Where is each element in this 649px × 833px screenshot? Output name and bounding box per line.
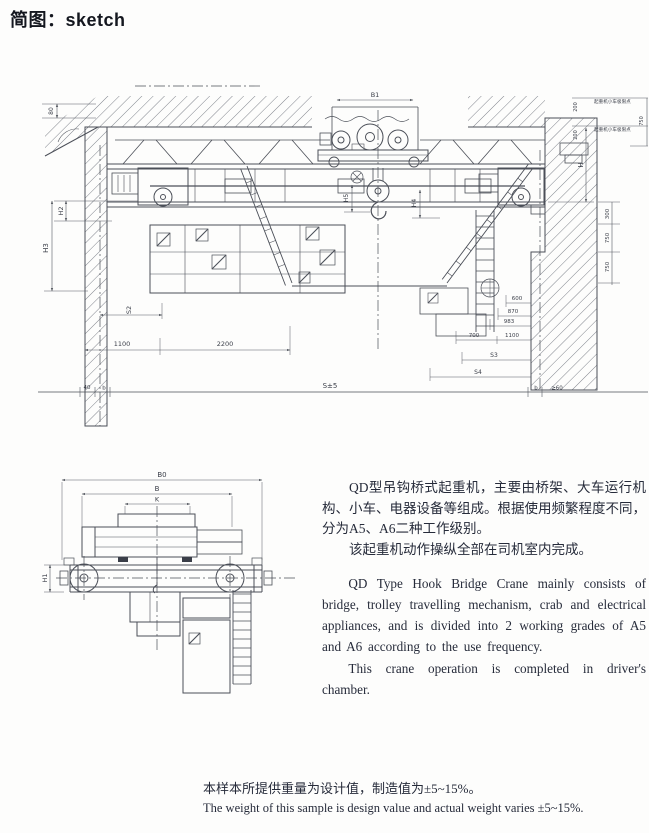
hook-icon xyxy=(371,202,386,219)
footnote-block: 本样本所提供重量为设计值，制造值为±5~15%。 The weight of t… xyxy=(203,780,584,818)
description-en-1: QD Type Hook Bridge Crane mainly consist… xyxy=(322,573,646,658)
endview-cabin xyxy=(130,590,251,693)
cabin-windows xyxy=(157,227,335,283)
dim-label-k: K xyxy=(155,496,160,504)
right-column xyxy=(531,118,597,390)
endview-trolley xyxy=(82,514,242,593)
trolley-limit-note-1: 起重机小车极限点 xyxy=(594,98,631,105)
dim-label-h1: H1 xyxy=(41,573,49,582)
ceiling-hatch-left xyxy=(98,96,312,127)
endview-bridge xyxy=(60,558,272,592)
description-en-2: This crane operation is completed in dri… xyxy=(322,658,646,700)
dim-label-s2: S2 xyxy=(125,306,133,314)
dim-label-b-left: b xyxy=(102,386,106,392)
drivers-cabin xyxy=(150,225,345,293)
page-title: 简图：sketch xyxy=(10,6,126,32)
dim-label-1100: 1100 xyxy=(114,340,131,348)
dim-label-h4: H4 xyxy=(411,199,418,208)
dim-label-2200: 2200 xyxy=(217,340,234,348)
dim-label-983: 983 xyxy=(504,319,515,325)
dim-label-200b: 200 xyxy=(573,130,579,140)
dim-label-870: 870 xyxy=(508,309,519,315)
dim-label-span: S±5 xyxy=(323,382,338,390)
endview-centerlines xyxy=(56,506,295,652)
dim-label-s4: S4 xyxy=(474,369,482,376)
footnote-zh: 本样本所提供重量为设计值，制造值为±5~15%。 xyxy=(203,780,584,798)
platform-boxes xyxy=(420,205,545,336)
trolley-limit-note-2: 起重机小车极限点 xyxy=(594,126,631,133)
dim-label-750a: 750 xyxy=(605,232,611,243)
dim-label-60: ≥60 xyxy=(551,386,563,392)
dim-label-b-right: b xyxy=(534,386,538,392)
dim-label-200a: 200 xyxy=(573,102,579,112)
trolley xyxy=(318,107,428,167)
end-view-drawing xyxy=(56,506,295,693)
endview-dimensions xyxy=(44,480,262,592)
description-block: QD型吊钩桥式起重机，主要由桥架、大车运行机构、小车、电器设备等组成。根据使用频… xyxy=(322,478,646,700)
left-column xyxy=(85,127,107,426)
dim-label-h5: H5 xyxy=(343,194,350,203)
rail-centerlines xyxy=(100,145,540,426)
dim-label-300: 300 xyxy=(605,208,611,219)
dim-label-40: 40 xyxy=(84,385,91,391)
dim-label-1100b: 1100 xyxy=(505,333,519,339)
footnote-en: The weight of this sample is design valu… xyxy=(203,800,584,818)
ceiling-hatch-right xyxy=(468,96,545,127)
description-zh-1: QD型吊钩桥式起重机，主要由桥架、大车运行机构、小车、电器设备等组成。根据使用频… xyxy=(322,478,646,540)
dim-label-600: 600 xyxy=(512,296,523,302)
stair-right xyxy=(442,164,533,283)
stair-left xyxy=(241,166,293,286)
left-end-truck xyxy=(112,168,188,206)
dim-label-h3: H3 xyxy=(42,243,50,253)
dim-label-s3: S3 xyxy=(490,352,498,359)
dim-label-b0: B0 xyxy=(157,471,166,479)
elevation-drawing xyxy=(45,86,597,426)
dim-label-750b: 750 xyxy=(605,261,611,272)
dim-label-b1: B1 xyxy=(371,91,380,99)
railing-braces xyxy=(123,140,532,164)
dim-label-b: B xyxy=(155,485,160,493)
dim-label-700: 700 xyxy=(469,333,480,339)
hook-assembly xyxy=(351,110,389,352)
dim-label-750r: 750 xyxy=(639,116,645,126)
dim-label-h: H xyxy=(577,162,585,167)
catalog-page: 简图：sketch xyxy=(0,0,649,833)
dim-label-h2: H2 xyxy=(57,206,65,215)
break-squiggle xyxy=(325,117,409,122)
description-zh-2: 该起重机动作操纵全部在司机室内完成。 xyxy=(322,540,646,561)
dim-label-80: 80 xyxy=(48,107,55,115)
